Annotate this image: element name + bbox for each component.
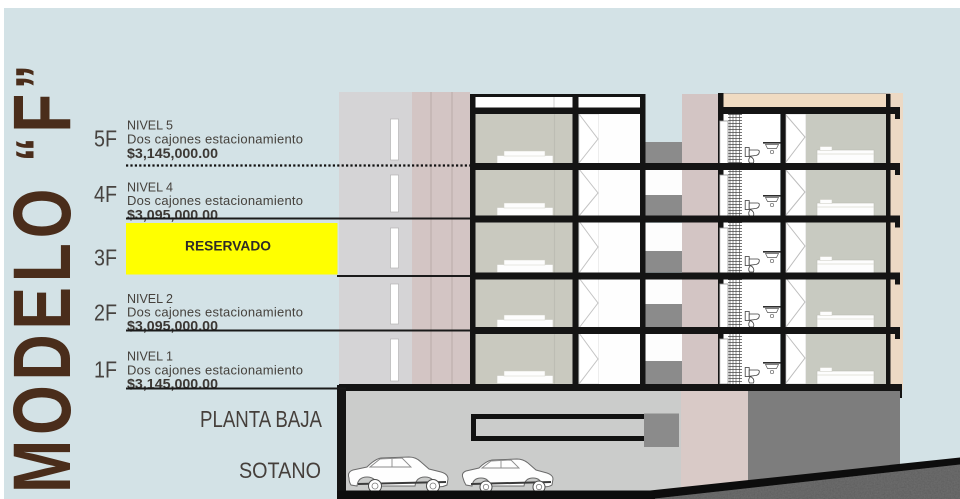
svg-text:Dos cajones estacionamiento: Dos cajones estacionamiento xyxy=(127,132,303,147)
svg-text:4F: 4F xyxy=(94,181,117,207)
svg-text:3F: 3F xyxy=(94,245,117,271)
svg-text:SOTANO: SOTANO xyxy=(239,458,321,483)
svg-text:NIVEL 5: NIVEL 5 xyxy=(127,119,173,133)
svg-text:1F: 1F xyxy=(94,357,117,383)
svg-text:Dos cajones estacionamiento: Dos cajones estacionamiento xyxy=(127,363,303,378)
svg-text:RESERVADO: RESERVADO xyxy=(185,239,271,254)
svg-text:MODELO “F”: MODELO “F” xyxy=(0,65,88,493)
svg-text:Dos cajones estacionamiento: Dos cajones estacionamiento xyxy=(127,305,303,320)
svg-text:5F: 5F xyxy=(94,126,117,152)
svg-text:NIVEL 1: NIVEL 1 xyxy=(127,350,173,364)
svg-text:$3,145,000.00: $3,145,000.00 xyxy=(127,146,218,161)
svg-text:Dos cajones estacionamiento: Dos cajones estacionamiento xyxy=(127,193,303,208)
svg-text:$3,095,000.00: $3,095,000.00 xyxy=(127,208,218,223)
svg-text:PLANTA BAJA: PLANTA BAJA xyxy=(200,406,322,432)
svg-text:2F: 2F xyxy=(94,300,117,326)
